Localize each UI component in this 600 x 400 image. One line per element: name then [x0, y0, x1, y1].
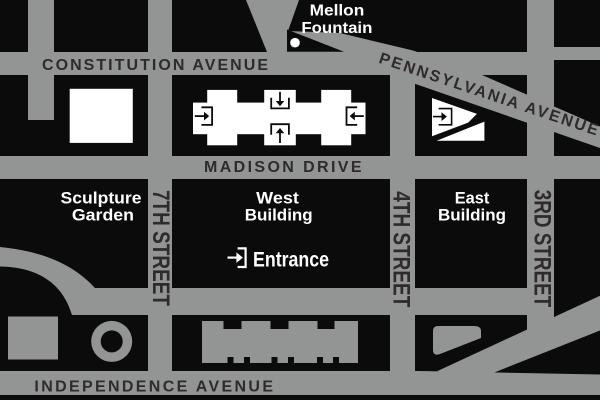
svg-text:3RD STREET: 3RD STREET	[528, 190, 555, 308]
svg-text:Building: Building	[245, 206, 313, 225]
svg-text:Entrance: Entrance	[253, 248, 329, 271]
svg-text:Fountain: Fountain	[301, 20, 372, 37]
svg-text:MADISON DRIVE: MADISON DRIVE	[204, 159, 362, 176]
svg-text:Garden: Garden	[72, 206, 134, 225]
svg-text:4TH STREET: 4TH STREET	[388, 191, 415, 307]
svg-text:Mellon: Mellon	[310, 3, 365, 20]
svg-text:7TH STREET: 7TH STREET	[147, 190, 174, 306]
svg-text:CONSTITUTION AVENUE: CONSTITUTION AVENUE	[42, 57, 268, 74]
svg-text:Building: Building	[438, 206, 506, 225]
svg-text:INDEPENDENCE AVENUE: INDEPENDENCE AVENUE	[34, 379, 273, 396]
